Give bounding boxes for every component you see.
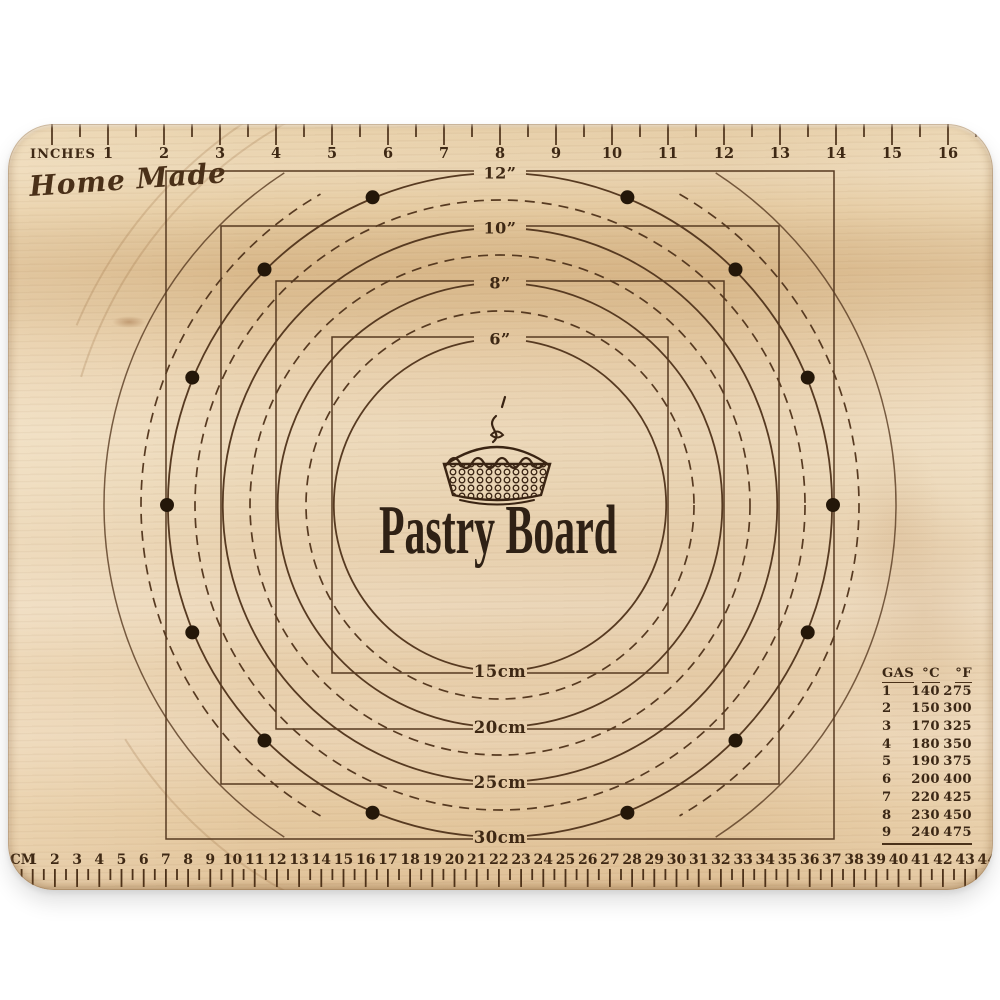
oven-table-cell: 5: [882, 753, 904, 771]
cm-ruler-number: 40: [889, 852, 909, 868]
product-photo-stage: 6”15cm8”20cm10”25cm12”30cm12345678910111…: [0, 0, 1000, 1000]
oven-table-cell: 325: [942, 718, 972, 736]
cm-ruler-number: 31: [689, 852, 708, 868]
measurement-dot: [160, 498, 174, 512]
cm-ruler-number: 25: [556, 852, 575, 868]
circle-size-label-inches: 8”: [489, 274, 510, 293]
oven-table-header: °C: [906, 665, 940, 683]
cm-ruler-number: 23: [511, 852, 530, 868]
inch-ruler-number: 9: [551, 145, 561, 162]
measurement-dot: [366, 806, 380, 820]
cm-ruler-number: 20: [445, 852, 465, 868]
cm-ruler-number: 9: [205, 852, 215, 868]
measurement-dot: [826, 498, 840, 512]
cm-ruler-number: 3: [72, 852, 82, 868]
inch-ruler-unit-label: INCHES: [30, 147, 96, 162]
oven-table-row: 6200400: [882, 771, 972, 789]
cm-ruler-number: 19: [423, 852, 442, 868]
oven-table-row: 5190375: [882, 753, 972, 771]
pie-dish-body: [444, 464, 550, 500]
cm-ruler-number: 26: [578, 852, 597, 868]
cm-ruler-number: 32: [711, 852, 730, 868]
measurement-dot: [801, 625, 815, 639]
circle-size-label-cm: 15cm: [474, 662, 527, 681]
circle-size-label-cm: 30cm: [474, 828, 527, 847]
cm-ruler-number: 43: [955, 852, 974, 868]
oven-table-row: 3170325: [882, 718, 972, 736]
inch-ruler-number: 10: [602, 145, 622, 162]
oven-table-cell: 140: [906, 683, 940, 701]
circle-size-label-inches: 10”: [484, 219, 517, 238]
inch-ruler-number: 15: [882, 145, 902, 162]
measurement-dot: [258, 734, 272, 748]
cm-ruler-number: 5: [117, 852, 127, 868]
oven-table-cell: 7: [882, 789, 904, 807]
inch-ruler-number: 7: [439, 145, 449, 162]
inch-ruler-number: 4: [271, 145, 281, 162]
cm-ruler-number: 29: [645, 852, 664, 868]
brand-script: Home Made: [27, 156, 228, 203]
inch-ruler-number: 14: [826, 145, 846, 162]
cm-ruler-number: 44: [978, 852, 993, 868]
oven-table-cell: 400: [942, 771, 972, 789]
oven-table-cell: 150: [906, 700, 940, 718]
cm-ruler-number: 6: [139, 852, 149, 868]
cm-ruler-number: 36: [800, 852, 819, 868]
pastry-board: 6”15cm8”20cm10”25cm12”30cm12345678910111…: [8, 124, 993, 890]
cm-ruler-number: 10: [223, 852, 243, 868]
cm-ruler-number: 18: [400, 852, 419, 868]
cm-ruler-number: 28: [622, 852, 641, 868]
cm-ruler-number: 21: [467, 852, 486, 868]
oven-table-cell: 220: [906, 789, 940, 807]
oven-table-cell: 300: [942, 700, 972, 718]
cm-ruler-number: 7: [161, 852, 171, 868]
inch-ruler-number: 13: [770, 145, 790, 162]
measurement-dot: [801, 371, 815, 385]
oven-table-cell: 230: [906, 807, 940, 825]
oven-table-cell: 3: [882, 718, 904, 736]
circle-size-label-cm: 25cm: [474, 773, 527, 792]
cm-ruler-unit-label: CM: [10, 852, 36, 868]
inch-ruler-number: 12: [714, 145, 734, 162]
oven-table-bottom-rule: [882, 843, 972, 845]
cm-ruler-number: 2: [50, 852, 60, 868]
oven-table-row: 7220425: [882, 789, 972, 807]
cm-ruler-number: 24: [534, 852, 554, 868]
inch-ruler-number: 11: [658, 145, 678, 162]
cm-ruler-number: 39: [867, 852, 886, 868]
inch-ruler-number: 16: [938, 145, 958, 162]
inch-ruler-number: 8: [495, 145, 505, 162]
oven-table-row: 1140275: [882, 683, 972, 701]
cm-ruler-number: 17: [378, 852, 397, 868]
cm-ruler-number: 4: [94, 852, 104, 868]
measurement-dot: [620, 806, 634, 820]
oven-table-cell: 1: [882, 683, 904, 701]
oven-table-cell: 2: [882, 700, 904, 718]
oven-table-header-row: GAS°C°F: [882, 665, 972, 683]
cm-ruler-number: 11: [245, 852, 264, 868]
inch-ruler-number: 6: [383, 145, 393, 162]
cm-ruler-number: 41: [911, 852, 930, 868]
oven-table-cell: 180: [906, 736, 940, 754]
outer-solid-circle: [716, 173, 896, 837]
cm-ruler-number: 42: [933, 852, 952, 868]
oven-table-header: GAS: [882, 665, 904, 683]
measurement-dot: [258, 263, 272, 277]
oven-table-cell: 200: [906, 771, 940, 789]
oven-table-cell: 425: [942, 789, 972, 807]
oven-table-cell: 450: [942, 807, 972, 825]
circle-size-label-inches: 6”: [489, 330, 510, 349]
cm-ruler-number: 22: [489, 852, 508, 868]
cm-ruler-number: 30: [667, 852, 687, 868]
cm-ruler-number: 34: [756, 852, 776, 868]
inch-ruler-number: 1: [103, 145, 113, 162]
oven-temperature-table: GAS°C°F114027521503003170325418035051903…: [882, 665, 972, 845]
oven-table-row: 9240475: [882, 824, 972, 842]
circle-size-label-inches: 12”: [484, 164, 517, 183]
oven-table-cell: 6: [882, 771, 904, 789]
oven-table-cell: 170: [906, 718, 940, 736]
cm-ruler-number: 12: [267, 852, 286, 868]
oven-table-cell: 350: [942, 736, 972, 754]
measurement-dot: [185, 371, 199, 385]
oven-table-row: 8230450: [882, 807, 972, 825]
cm-ruler-number: 33: [733, 852, 752, 868]
measurement-dot: [366, 190, 380, 204]
cm-ruler-number: 15: [334, 852, 353, 868]
circle-size-label-cm: 20cm: [474, 718, 527, 737]
oven-table-cell: 190: [906, 753, 940, 771]
cm-ruler-number: 37: [822, 852, 841, 868]
oven-table-header: °F: [942, 665, 972, 683]
outer-solid-circle: [104, 173, 284, 837]
cm-ruler-number: 38: [844, 852, 863, 868]
oven-table-cell: 375: [942, 753, 972, 771]
measurement-dot: [185, 625, 199, 639]
oven-table-cell: 4: [882, 736, 904, 754]
cm-ruler-number: 13: [289, 852, 308, 868]
oven-table-row: 4180350: [882, 736, 972, 754]
measurement-dot: [620, 190, 634, 204]
engraved-measuring-diagram: 6”15cm8”20cm10”25cm12”30cm12345678910111…: [8, 124, 993, 890]
cm-ruler-number: 35: [778, 852, 797, 868]
oven-table-cell: 8: [882, 807, 904, 825]
measurement-dot: [729, 734, 743, 748]
inch-ruler-number: 5: [327, 145, 337, 162]
cm-ruler-number: 16: [356, 852, 375, 868]
cm-ruler-number: 14: [312, 852, 332, 868]
cm-ruler-number: 27: [600, 852, 619, 868]
oven-table-cell: 9: [882, 824, 904, 842]
oven-table-row: 2150300: [882, 700, 972, 718]
oven-table-cell: 275: [942, 683, 972, 701]
oven-table-cell: 475: [942, 824, 972, 842]
pie-steam: [502, 397, 505, 407]
cm-ruler-number: 8: [183, 852, 193, 868]
oven-table-cell: 240: [906, 824, 940, 842]
measurement-dot: [729, 263, 743, 277]
